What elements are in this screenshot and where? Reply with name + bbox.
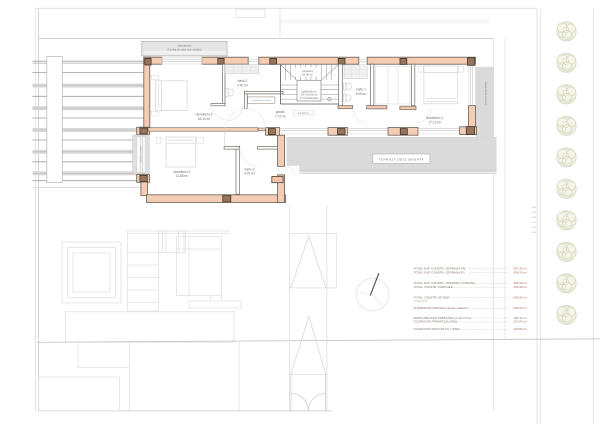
svg-text:223.03 m²: 223.03 m² — [513, 320, 527, 324]
svg-text:SUPERFICIE PARCELA (según cata: SUPERFICIE PARCELA (según catastro) — [414, 306, 469, 310]
svg-text:120.84 m²: 120.84 m² — [513, 327, 527, 331]
svg-text:+3.00 m: +3.00 m — [298, 111, 309, 115]
svg-text:11.88 m²: 11.88 m² — [176, 174, 188, 178]
svg-text:con descuento: con descuento — [414, 300, 428, 303]
svg-text:16.06 m²: 16.06 m² — [302, 72, 313, 76]
svg-text:5.05 m²: 5.05 m² — [356, 92, 367, 96]
svg-text:103.29 m²: 103.29 m² — [513, 285, 527, 289]
svg-text:3.50: 3.50 — [532, 222, 537, 224]
svg-text:TOTAL CONSTR. SF. ESP: TOTAL CONSTR. SF. ESP — [414, 295, 450, 299]
svg-text:4.40 m²: 4.40 m² — [237, 83, 248, 87]
svg-text:(bomba de calor acumulador): (bomba de calor acumulador) — [168, 48, 202, 52]
svg-text:7.72 m²: 7.72 m² — [275, 114, 286, 118]
svg-text:TOTAL CONSTR. PORCHES: TOTAL CONSTR. PORCHES — [414, 285, 453, 289]
svg-text:3.50: 3.50 — [532, 217, 537, 219]
svg-text:036.92 m²: 036.92 m² — [513, 295, 527, 299]
svg-text:17 contrahuellas: 17 contrahuellas — [300, 97, 319, 100]
svg-text:OCUPACIÓN PERMITIDA (30%): OCUPACIÓN PERMITIDA (30%) — [414, 319, 458, 324]
svg-text:mueble bajo lavabo: mueble bajo lavabo — [252, 100, 272, 102]
svg-text:TOTAL SUP. CONSTR. CERRADA P.1: TOTAL SUP. CONSTR. CERRADA P.1 — [414, 270, 466, 274]
svg-text:099.20 m²: 099.20 m² — [513, 270, 527, 274]
svg-text:3.50: 3.50 — [532, 227, 537, 229]
svg-text:3.50: 3.50 — [532, 207, 537, 209]
svg-text:OCUPACIÓN PROYECTO (<30%): OCUPACIÓN PROYECTO (<30%) — [414, 326, 460, 331]
svg-text:3.50: 3.50 — [532, 212, 537, 214]
svg-text:terraza descubierta: terraza descubierta — [484, 81, 488, 105]
svg-text:17.10 m²: 17.10 m² — [429, 120, 442, 124]
svg-text:TERRAZA DESCUBIERTA: TERRAZA DESCUBIERTA — [379, 157, 425, 161]
svg-text:4.76 m²: 4.76 m² — [244, 172, 255, 176]
svg-text:694.20 m²: 694.20 m² — [513, 306, 527, 310]
svg-text:16.13 m²: 16.13 m² — [198, 117, 211, 121]
svg-text:ventana corredera: ventana corredera — [139, 145, 142, 164]
svg-text:sala tecnica: sala tecnica — [178, 44, 192, 48]
svg-text:3.50: 3.50 — [532, 232, 537, 234]
